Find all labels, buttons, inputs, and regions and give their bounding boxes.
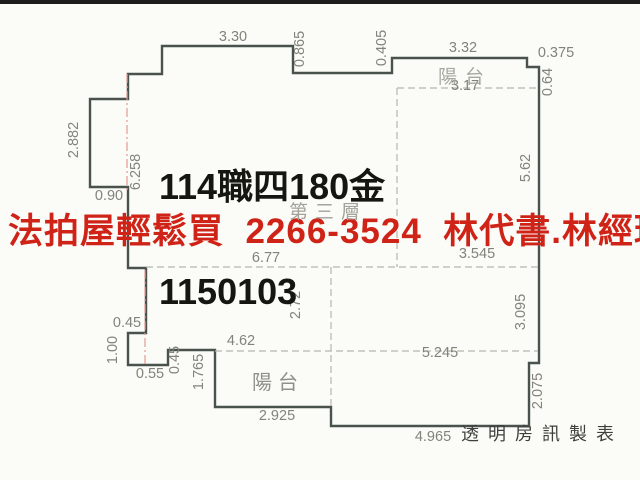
dimension-label: 0.45: [113, 315, 141, 331]
floor-level-label: 第三層: [289, 197, 367, 224]
dimension-label: 0.90: [95, 188, 123, 204]
source-credit-label: 透明房訊製表: [461, 420, 623, 446]
dimension-label: 3.30: [219, 29, 247, 45]
dimension-label-vertical: 0.45: [167, 346, 183, 374]
dimension-label: 4.965: [415, 429, 451, 445]
case-date: 1150103: [159, 274, 385, 309]
dimension-label: 0.55: [136, 366, 164, 382]
dimension-label-vertical: 1.765: [191, 354, 207, 390]
dimension-label-vertical: 0.865: [292, 31, 308, 67]
balcony-top-label: 陽台: [438, 62, 492, 89]
dimension-label: 3.32: [449, 40, 477, 56]
dimension-label: 5.245: [422, 345, 458, 361]
dimension-label-vertical: 5.62: [518, 154, 534, 182]
dimension-label-vertical: 0.64: [540, 68, 556, 96]
floorplan-scan-page: { "title": { "line1": "114職四180金", "line…: [0, 0, 640, 480]
dimension-label-vertical: 2.882: [66, 122, 82, 158]
dimension-label-vertical: 1.00: [105, 336, 121, 364]
dimension-label: 0.375: [538, 45, 574, 61]
dimension-label-vertical: 0.405: [374, 30, 390, 66]
dimension-label: 2.925: [259, 408, 295, 424]
dimension-label-vertical: 6.258: [128, 154, 144, 190]
dimension-label-vertical: 2.075: [530, 373, 546, 409]
balcony-bottom-label: 陽台: [252, 366, 304, 395]
dimension-label-vertical: 3.095: [513, 294, 529, 330]
